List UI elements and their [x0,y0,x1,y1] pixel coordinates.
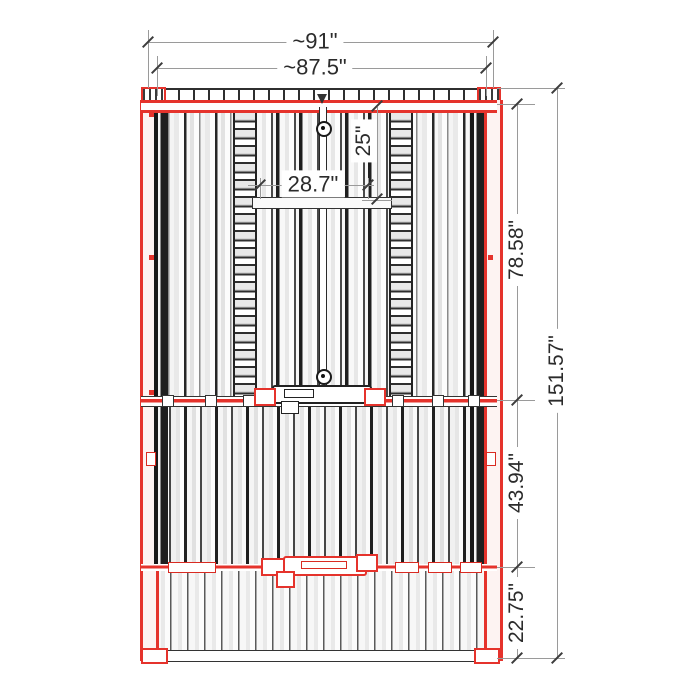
frame-pin [149,255,154,260]
frame-pin [149,112,154,117]
porch-door-handle [301,561,347,569]
door-frame-right-ladder [389,107,413,398]
right-frame-notch [486,452,496,466]
middle-door-hinge-left [254,388,276,406]
porch-door-latch [276,571,295,588]
right-edge-stud [470,107,484,565]
right-wall-red-frame [484,100,503,661]
porch-divider-block [395,562,419,573]
divider-notch [162,395,174,407]
divider-notch [205,395,217,407]
dim-label-lower-section: 22.75" [504,577,530,649]
ext-line [260,178,261,199]
ext-line [157,56,158,96]
frame-pin [488,255,493,260]
left-edge-stud [154,107,168,565]
middle-door-handle [284,389,314,398]
porch-divider-block [428,562,452,573]
divider-notch [392,395,404,407]
frame-pin [149,390,154,395]
middle-section-slats [153,405,485,565]
porch-door-hinge-right [356,554,378,572]
middle-door-latch [281,401,299,414]
divider-notch [432,395,444,407]
porch-divider-block [460,562,482,573]
porch-divider-block [168,562,216,573]
door-frame-left-ladder [233,107,257,398]
dim-label-middle-section: 43.94" [504,447,530,519]
dim-line-sections [517,104,518,658]
base-corner-left [141,648,168,664]
door-knob-top-icon [316,121,332,137]
center-arrow-icon [317,94,327,104]
door-knob-bottom-icon [316,369,332,385]
dim-label-inner-width: ~87.5" [277,53,352,80]
dim-label-opening-width: 28.7" [282,170,345,197]
porch-section-slats [153,571,485,652]
sauna-plan-drawing: ~91" ~87.5" 78.58" 43.94" 22.75" 151.57"… [0,0,700,700]
left-frame-notch [146,452,156,466]
dim-label-overall-width: ~91" [286,27,343,54]
ext-line [486,56,487,96]
dim-label-overall-length: 151.57" [544,329,570,413]
base-board [158,650,484,662]
ext-line [368,178,369,199]
door-center-seam [319,107,327,398]
dim-label-opening-offset: 25" [351,120,377,163]
middle-door-hinge-right [364,388,386,406]
base-corner-right [474,648,500,664]
divider-notch [468,395,480,407]
dim-label-upper-section: 78.58" [504,214,530,286]
